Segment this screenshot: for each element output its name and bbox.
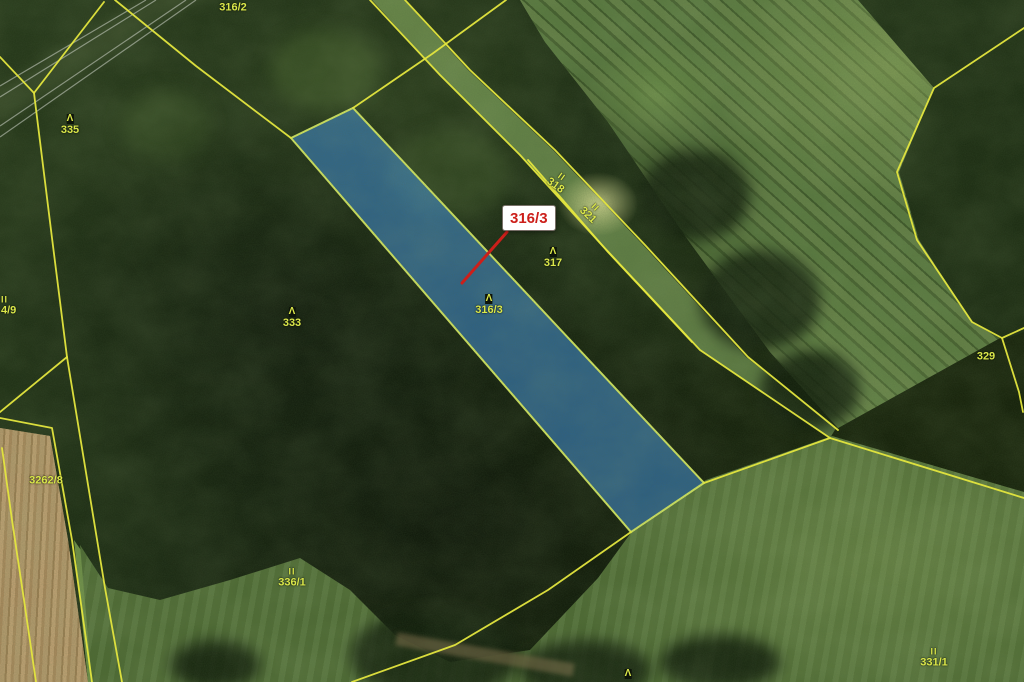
parcel-callout-text: 316/3 [510,210,548,227]
parcel-number: 336/1 [278,578,306,589]
map-viewport[interactable]: 316/2Λ335II318II321Λ317Λ316/3Λ333II4/932… [0,0,1024,682]
parcel-number: 335 [61,125,79,136]
parcel-number: 316/2 [219,3,247,14]
parcel-label-316/2: 316/2 [219,3,247,14]
parcel-label-321: II321 [577,198,605,226]
parcel-label-331/1: II331/1 [920,648,948,669]
parcel-number: 4/9 [1,306,16,317]
grassland-landuse-symbol-icon: II [1,296,8,305]
parcel-number: 329 [977,352,995,363]
parcel-labels-layer: 316/2Λ335II318II321Λ317Λ316/3Λ333II4/932… [0,0,1024,682]
parcel-label-335: Λ335 [61,114,79,136]
parcel-label-3262/8: 3262/8 [29,476,63,487]
parcel-label-336/1: II336/1 [278,568,306,589]
forest-landuse-symbol-icon: Λ [67,114,74,124]
parcel-callout: 316/3 [503,206,555,230]
grassland-landuse-symbol-icon: II [556,171,567,182]
parcel-number: 331/1 [920,658,948,669]
parcel-number: 318 [544,176,565,196]
grassland-landuse-symbol-icon: II [930,648,937,657]
parcel-label-316/3: Λ316/3 [475,294,503,316]
forest-landuse-symbol-icon: Λ [289,307,296,317]
parcel-number: 333 [283,318,301,329]
parcel-number: 317 [544,258,562,269]
parcel-label-symbol: Λ [625,669,632,679]
parcel-label-4/9: II4/9 [1,296,16,317]
forest-landuse-symbol-icon: Λ [486,294,493,304]
parcel-number: 3262/8 [29,476,63,487]
grassland-landuse-symbol-icon: II [288,568,295,577]
parcel-number: 321 [577,205,598,226]
parcel-label-333: Λ333 [283,307,301,329]
forest-landuse-symbol-icon: Λ [625,669,632,679]
parcel-number: 316/3 [475,305,503,316]
parcel-label-317: Λ317 [544,247,562,269]
parcel-label-318: II318 [544,168,571,196]
forest-landuse-symbol-icon: Λ [550,247,557,257]
grassland-landuse-symbol-icon: II [590,202,601,213]
parcel-label-329: 329 [977,352,995,363]
